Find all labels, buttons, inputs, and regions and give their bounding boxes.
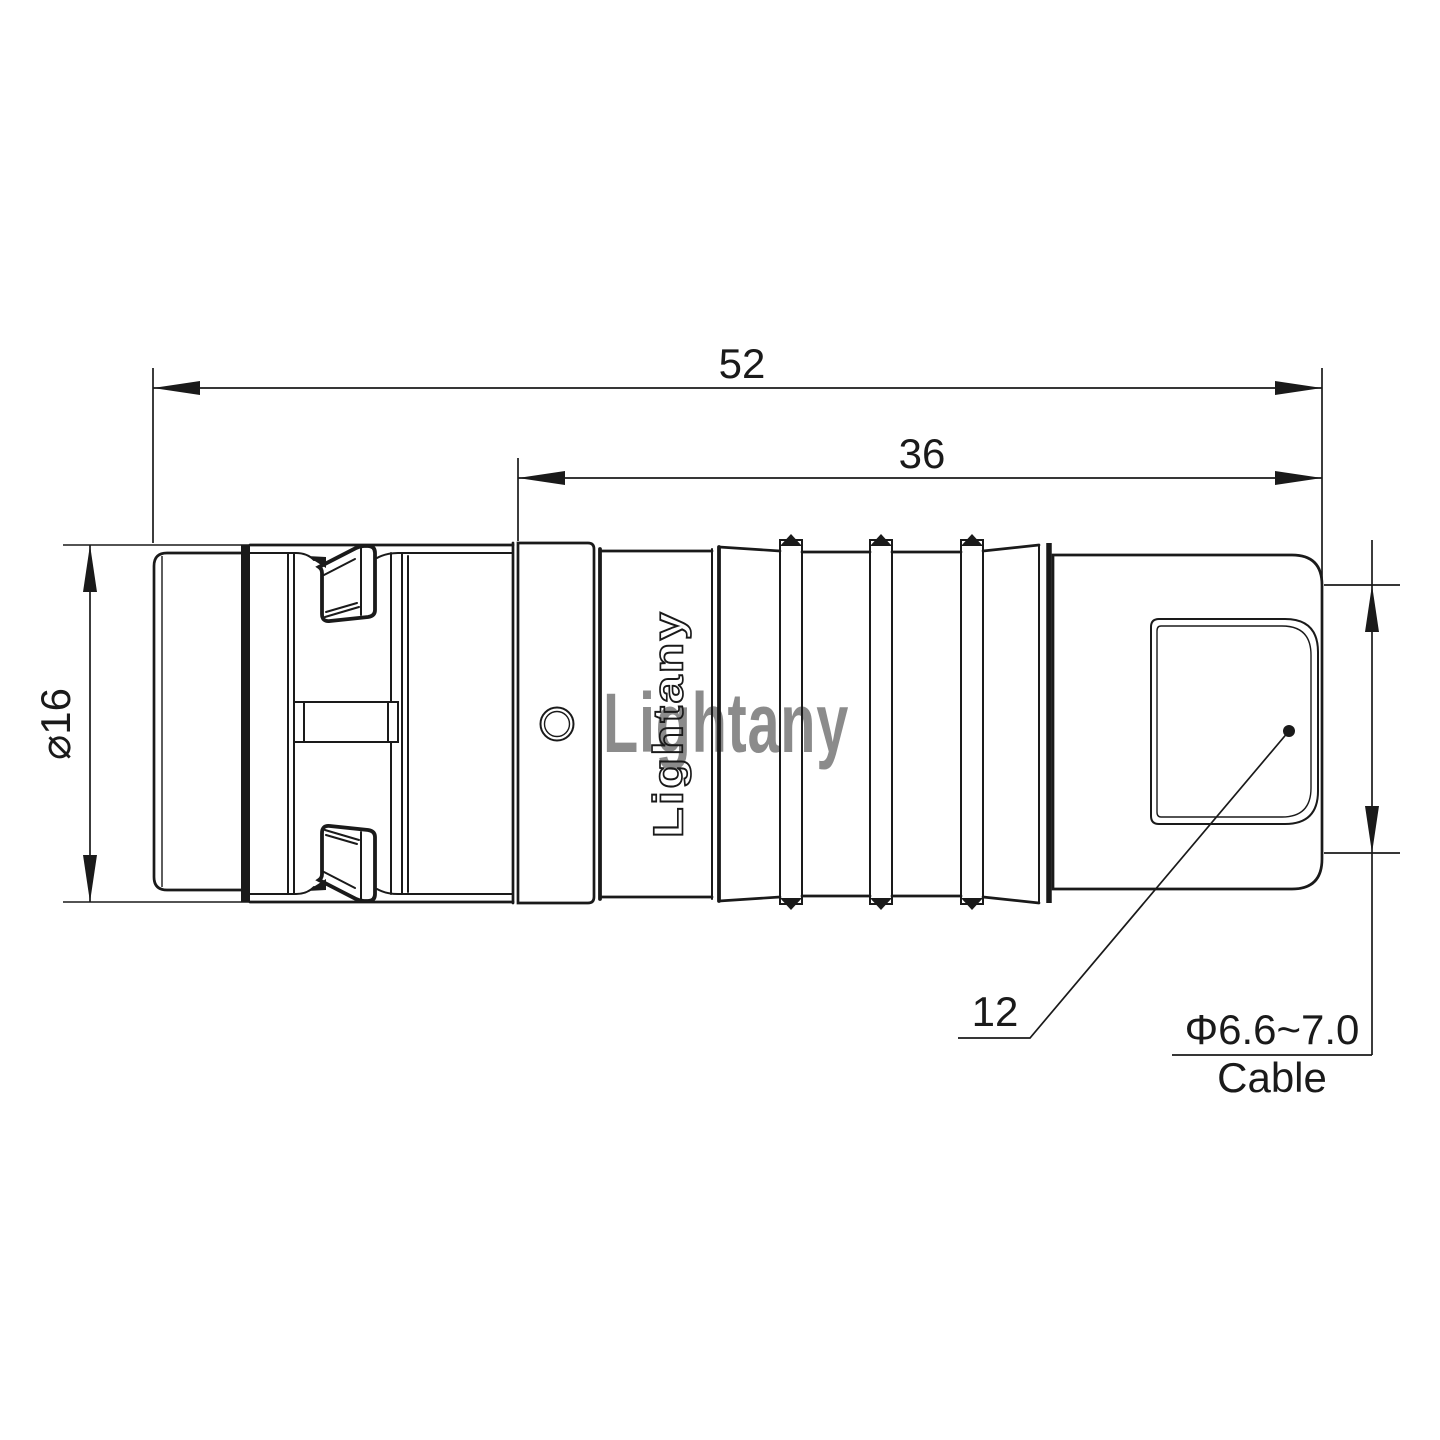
cable-diameter-value: Φ6.6~7.0: [1185, 1006, 1360, 1053]
collar-ring: [518, 543, 600, 903]
dimension-overall-length-value: 52: [719, 340, 766, 387]
connector-drawing-canvas: Lightany: [0, 0, 1440, 1440]
dimension-grip-length-value: 36: [899, 430, 946, 477]
watermark: Lightany: [603, 676, 849, 770]
technical-drawing: Lightany: [0, 0, 1440, 1440]
cable-label: Cable: [1217, 1054, 1327, 1101]
dimension-shell-diameter-value: ⌀16: [32, 688, 79, 760]
leader-dot: [1283, 725, 1295, 737]
rear-housing: [1053, 555, 1322, 889]
rear-width-value: 12: [972, 988, 1019, 1035]
